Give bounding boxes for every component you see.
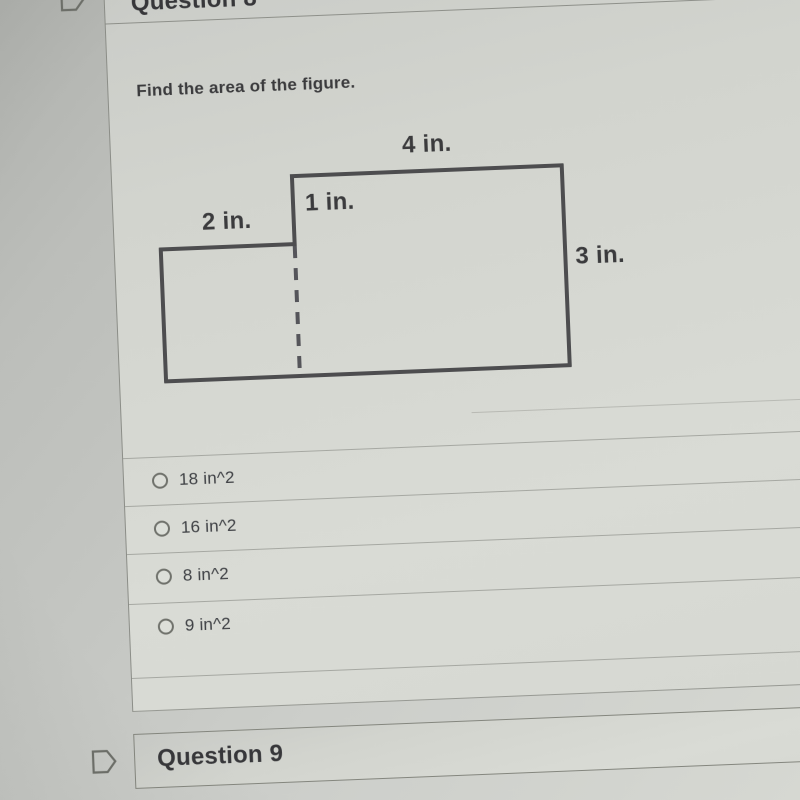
flag-question8-icon[interactable] [59,0,86,12]
photographed-screen: Question 8 Find the area of the figure. … [0,0,800,800]
radio-button[interactable] [154,520,171,537]
radio-button[interactable] [152,472,169,489]
figure-small-rectangle [159,242,302,383]
question8-card: Question 8 Find the area of the figure. … [101,0,800,712]
figure-large-rectangle [292,163,572,378]
divider-line [472,396,800,413]
question9-card: Question 9 [133,703,800,788]
dimension-label-right: 3 in. [575,241,626,271]
question9-title: Question 9 [157,740,284,773]
flag-question9-icon[interactable] [91,749,118,775]
radio-button[interactable] [156,568,173,585]
dimension-label-small-top: 2 in. [157,205,296,239]
answer-option-label[interactable]: 9 in^2 [184,614,231,636]
question8-title: Question 8 [130,0,257,17]
dimension-label-top: 4 in. [290,125,563,164]
radio-button[interactable] [158,618,175,635]
question8-prompt: Find the area of the figure. [136,73,356,102]
divider-line [132,647,800,678]
answer-option-label[interactable]: 16 in^2 [181,516,237,538]
question8-header: Question 8 [102,0,800,25]
quiz-page: Question 8 Find the area of the figure. … [0,0,800,800]
answer-option-label[interactable]: 8 in^2 [182,564,229,586]
answer-option-label[interactable]: 18 in^2 [179,468,235,490]
